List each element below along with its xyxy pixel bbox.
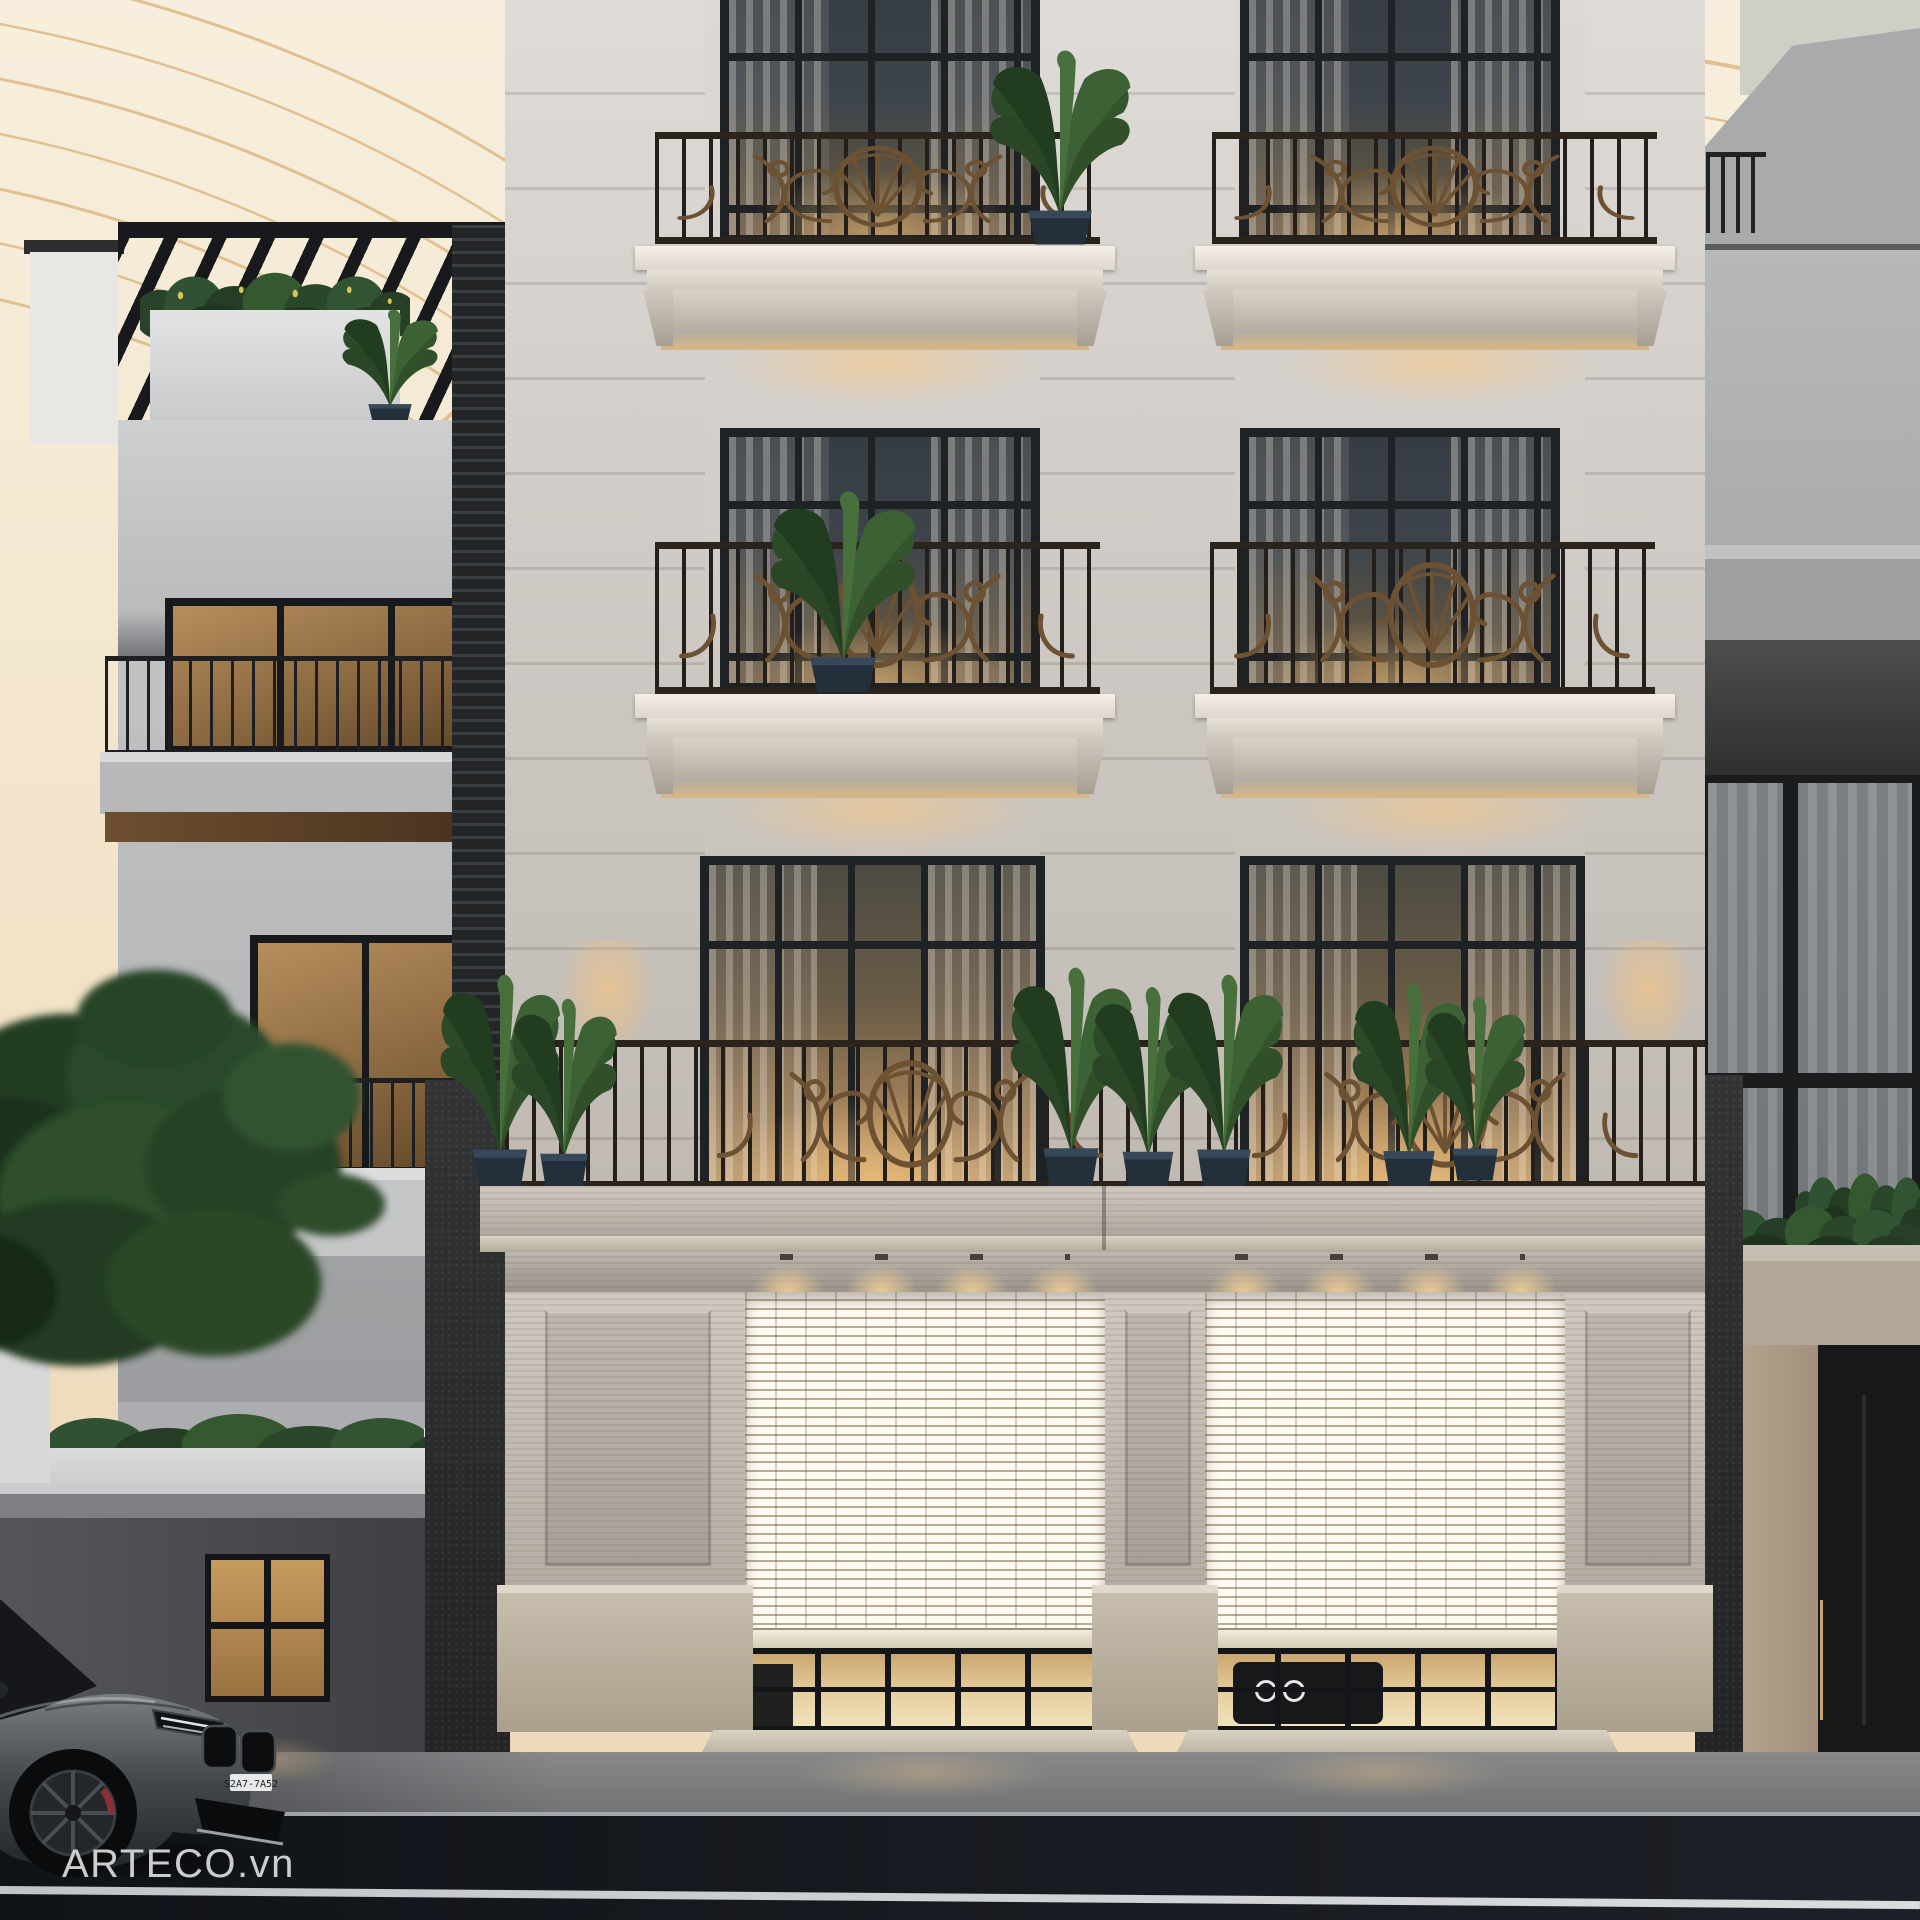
scene: S2A7-7A52 ARTECO.vn bbox=[0, 0, 1920, 1920]
pilaster-panel-right bbox=[1585, 1310, 1691, 1566]
balcony-plant-7 bbox=[1412, 974, 1538, 1182]
right-building-entry-pier bbox=[1743, 1345, 1818, 1752]
f4-plant bbox=[972, 26, 1148, 246]
balcony-plant-5 bbox=[1150, 948, 1298, 1188]
car-wheel-hub bbox=[65, 1805, 81, 1821]
right-building-soffit-shadow bbox=[1700, 640, 1920, 776]
beam-downlights-right bbox=[1200, 1250, 1565, 1292]
watermark: ARTECO.vn bbox=[62, 1842, 295, 1887]
f4-cornice-glow-right bbox=[1250, 350, 1630, 430]
pilaster-base-right bbox=[1557, 1585, 1713, 1732]
car-grille-kidney-right bbox=[241, 1731, 275, 1773]
f4-railing-ornament-right bbox=[1217, 138, 1652, 238]
street-tree bbox=[0, 950, 390, 1420]
f3-cornice-left bbox=[635, 694, 1115, 798]
light-pool-left-bay bbox=[760, 1750, 1090, 1808]
terrace-plant bbox=[330, 295, 450, 425]
left-balcony-wood-soffit bbox=[105, 812, 510, 842]
pier-panel-center bbox=[1125, 1310, 1191, 1566]
roller-shutter-left bbox=[745, 1292, 1105, 1650]
shutter-bottom-bar bbox=[745, 1628, 1105, 1650]
storefront-glazing-right bbox=[1205, 1648, 1565, 1732]
storefront-glazing-left bbox=[745, 1648, 1105, 1732]
left-parapet-wall bbox=[30, 252, 118, 444]
beam-downlights-left bbox=[745, 1250, 1105, 1292]
fascia-center-seam bbox=[1102, 1186, 1106, 1252]
f3-railing-ornament-right bbox=[1217, 552, 1647, 682]
right-building-roof-railing bbox=[1706, 152, 1766, 233]
pilaster-panel-left bbox=[545, 1310, 711, 1566]
right-building-entry-dark bbox=[1818, 1345, 1920, 1752]
right-building-balcony-slab bbox=[1700, 545, 1920, 641]
left-balcony-slab bbox=[100, 752, 510, 814]
license-plate-text: S2A7-7A52 bbox=[224, 1779, 278, 1790]
shutter-bottom-bar bbox=[1205, 1628, 1565, 1650]
left-balcony-railing-upper bbox=[105, 656, 510, 754]
roller-shutter-right bbox=[1205, 1292, 1565, 1650]
f4-cornice-glow-left bbox=[690, 350, 1070, 430]
f4-cornice-left bbox=[635, 246, 1115, 350]
balcony-plant-2 bbox=[498, 975, 630, 1188]
pier-base-center bbox=[1092, 1585, 1218, 1732]
f3-cornice-right bbox=[1195, 694, 1675, 798]
pilaster-base-left bbox=[497, 1585, 753, 1732]
car-grille-kidney-left bbox=[203, 1726, 237, 1768]
right-entry-light-seam bbox=[1820, 1600, 1823, 1720]
right-entry-door-seam bbox=[1862, 1395, 1866, 1725]
light-pool-right-bay bbox=[1215, 1750, 1545, 1808]
f4-cornice-right bbox=[1195, 246, 1675, 350]
f3-plant bbox=[752, 466, 934, 694]
right-building-upper-wall bbox=[1700, 250, 1920, 550]
